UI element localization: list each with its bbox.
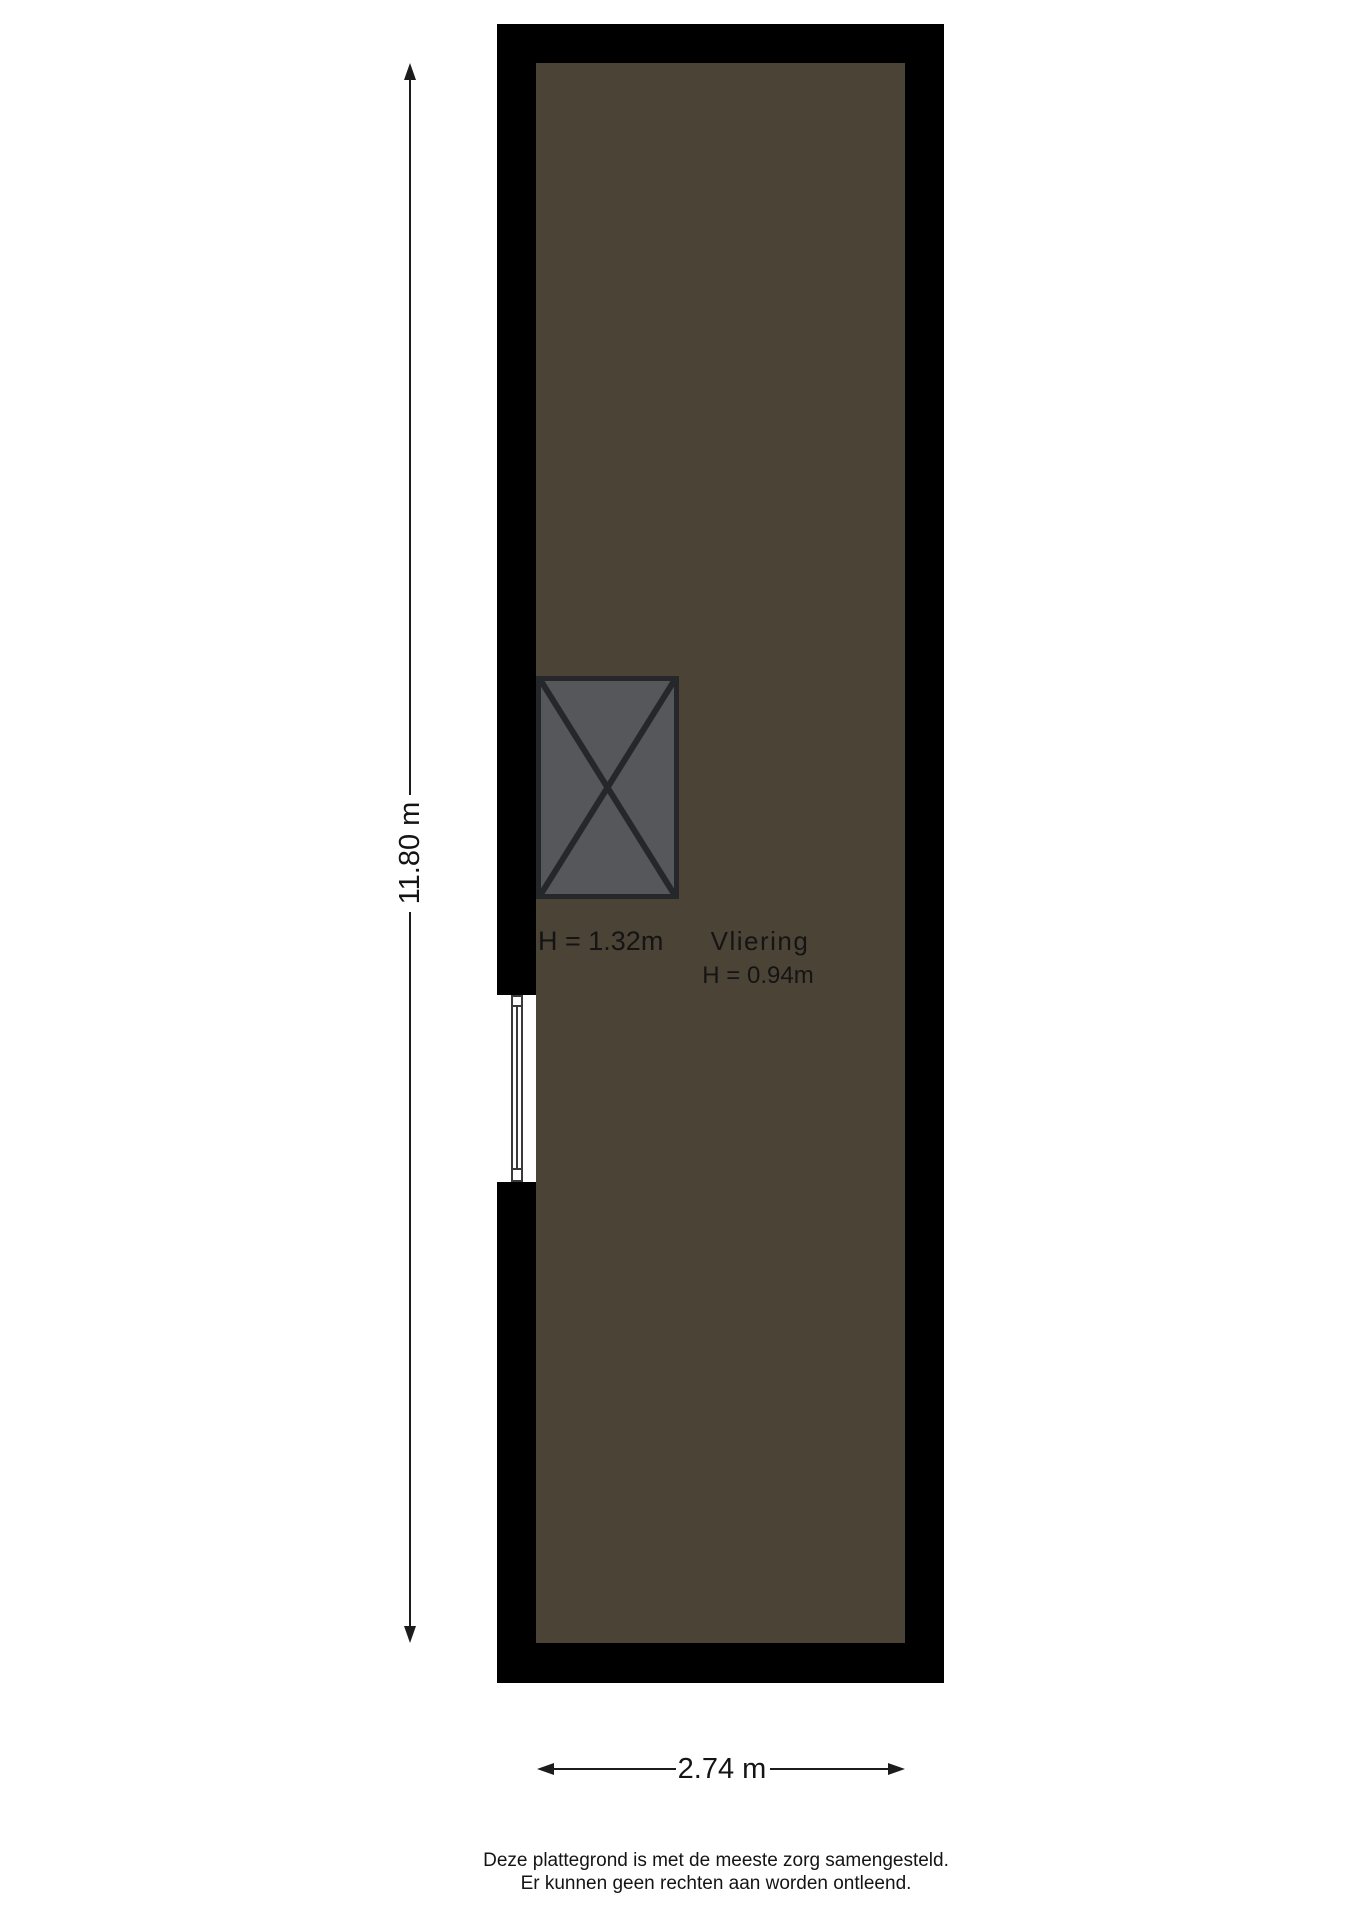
arrowhead-down-icon (404, 1626, 416, 1643)
disclaimer-line-1: Deze plattegrond is met de meeste zorg s… (483, 1849, 949, 1872)
horizontal-dimension-line-right (770, 1768, 897, 1770)
window-frame-cap-bottom (513, 1168, 521, 1170)
disclaimer-line-2: Er kunnen geen rechten aan worden ontlee… (483, 1872, 949, 1895)
horizontal-dimension-line-left (545, 1768, 676, 1770)
room-height-label: H = 0.94m (702, 962, 813, 990)
floor-plan-page: H = 1.32m Vliering H = 0.94m 11.80 m 2.7… (0, 0, 1358, 1920)
room-name-label: Vliering (711, 926, 810, 956)
width-dimension-label: 2.74 m (678, 1753, 767, 1785)
window-icon (511, 995, 523, 1182)
window-glass-line (516, 1007, 518, 1168)
height-dimension-label: 11.80 m (394, 802, 426, 905)
stairs-height-label: H = 1.32m (538, 926, 663, 956)
stairs-void (536, 676, 679, 899)
stairs-cross-icon (541, 681, 674, 894)
disclaimer-text: Deze plattegrond is met de meeste zorg s… (483, 1849, 949, 1895)
arrowhead-right-icon (888, 1763, 905, 1775)
vertical-dimension-line-lower (409, 912, 411, 1636)
vertical-dimension-line-upper (409, 70, 411, 795)
